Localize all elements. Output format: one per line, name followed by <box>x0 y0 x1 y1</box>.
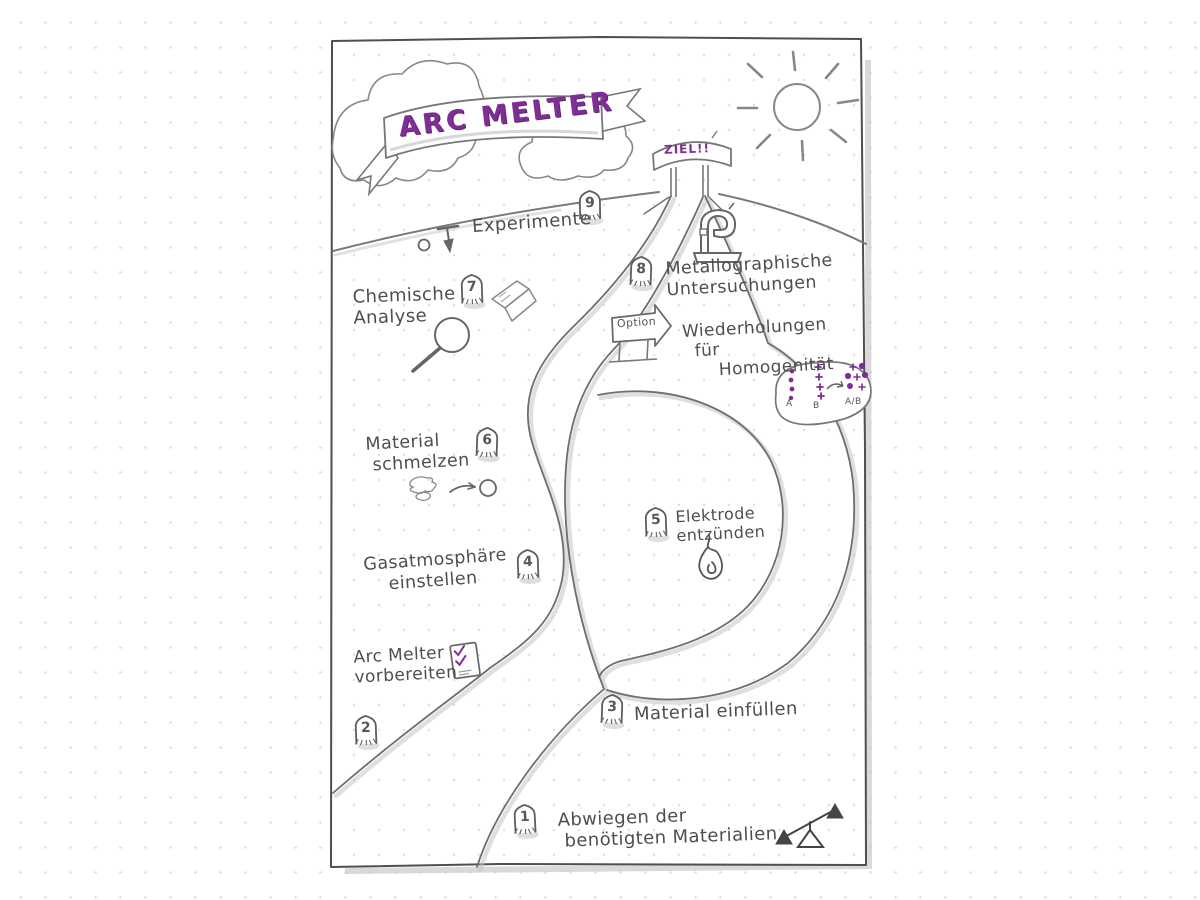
milestone-number: 4 <box>513 553 544 570</box>
sketchnote-page: { "banner": { "title": "ARC MELTER" }, "… <box>0 0 1200 900</box>
milestone-2: 2 <box>350 712 381 751</box>
milestone-number: 7 <box>457 278 488 295</box>
milestone-number: 5 <box>641 511 672 528</box>
option-sign-label: Option <box>617 316 657 332</box>
milestone-5: 5 <box>640 504 671 543</box>
milestone-number: 8 <box>626 260 657 277</box>
milestone-8: 8 <box>625 253 656 292</box>
step-label-7: Chemische Analyse <box>352 283 456 329</box>
step-label-6: Material schmelzen <box>365 429 470 476</box>
step-label-8: Metallographische Untersuchungen <box>665 251 834 301</box>
mix-label-ab: A/B <box>845 397 862 408</box>
step-label-5: Elektrode entzünden <box>675 504 766 546</box>
milestone-number: 1 <box>509 808 540 826</box>
mix-label-a: A <box>786 399 793 410</box>
sketch-canvas <box>0 0 1200 900</box>
milestone-3: 3 <box>596 691 627 730</box>
milestone-6: 6 <box>471 424 502 463</box>
goal-gate-label: ZIEL!! <box>664 141 710 157</box>
mix-label-b: B <box>813 401 820 412</box>
step-label-1: Abwiegen der benötigten Materialien <box>557 802 778 852</box>
milestone-number: 3 <box>597 698 628 715</box>
milestone-number: 6 <box>472 431 503 448</box>
step-label-2: Arc Melter vorbereiten <box>353 642 458 687</box>
milestone-1: 1 <box>509 801 541 841</box>
option-loop-label: Wiederholungen für Homogenität <box>682 314 835 382</box>
milestone-7: 7 <box>456 271 487 310</box>
milestone-4: 4 <box>512 546 543 585</box>
milestone-number: 2 <box>351 719 382 736</box>
